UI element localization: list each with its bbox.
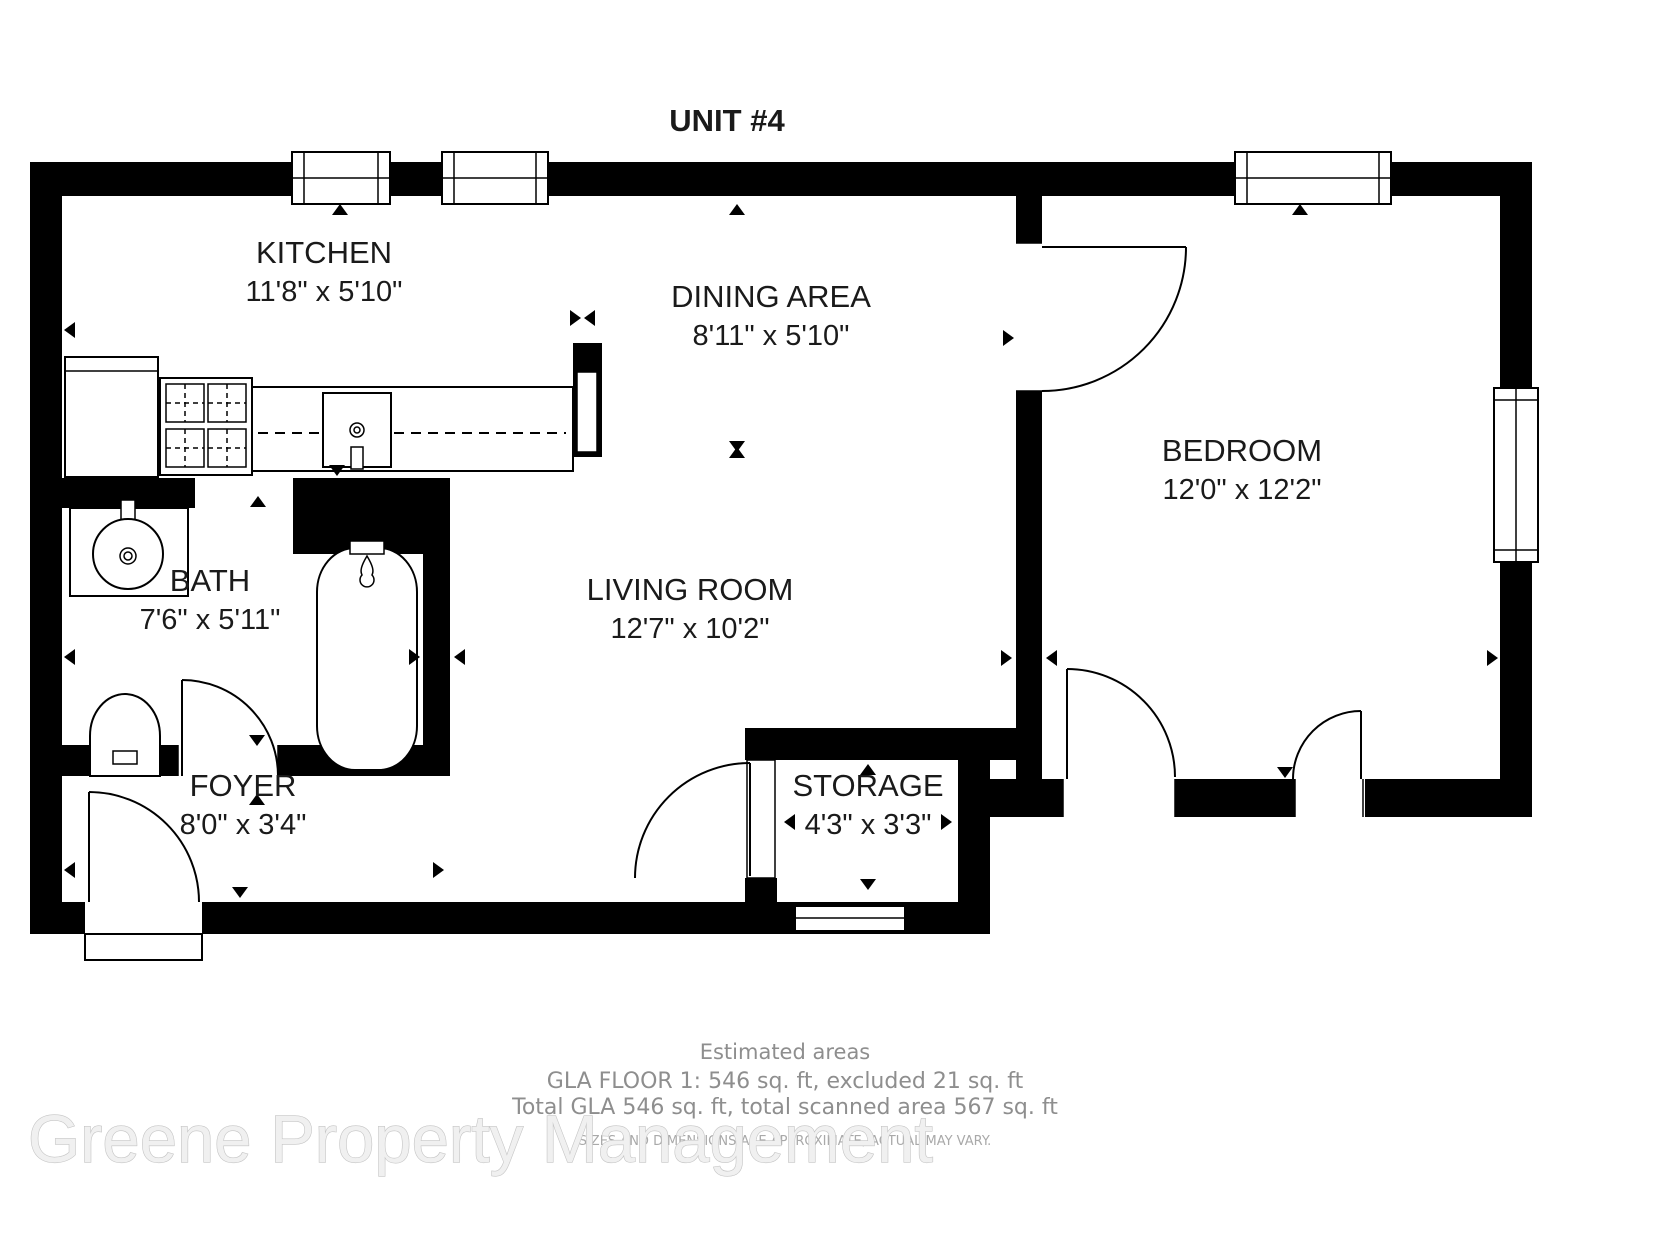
window-kitchen-2 [442,152,548,204]
footer-gla-line: GLA FLOOR 1: 546 sq. ft, excluded 21 sq.… [547,1069,1024,1094]
wall-left [30,196,62,934]
wall-bath-right [423,478,450,776]
bathtub-icon [317,541,417,770]
toilet-icon [90,694,160,776]
room-label-dining: DINING AREA [671,279,871,314]
room-label-foyer: FOYER [190,768,297,803]
stove-icon [160,378,252,475]
wall-storage-top [745,728,1040,760]
room-dims-dining: 8'11" x 5'10" [693,320,850,352]
room-label-kitchen: KITCHEN [256,235,392,270]
room-dims-kitchen: 11'8" x 5'10" [246,276,403,308]
window-bedroom-top [1235,152,1391,204]
room-dims-bath: 7'6" x 5'11" [140,604,281,636]
window-bedroom-right [1494,388,1538,562]
room-dims-storage: 4'3" x 3'3" [805,809,932,841]
peninsula-stub-slot [577,372,597,452]
room-label-storage: STORAGE [792,768,943,803]
footer-heading: Estimated areas [700,1040,871,1064]
floor-plan-page: UNIT #4 [0,0,1680,1260]
kitchen-counter [252,387,573,471]
floor-plan-canvas: UNIT #4 [0,0,1680,1260]
refrigerator-icon [65,357,158,477]
room-label-living: LIVING ROOM [587,572,794,607]
room-dims-foyer: 8'0" x 3'4" [180,809,307,841]
kitchen-sink-icon [323,393,391,469]
window-storage-bottom [795,906,905,931]
wall-storage-right [958,728,990,934]
page-title: UNIT #4 [669,103,785,138]
footer-total-line: Total GLA 546 sq. ft, total scanned area… [511,1095,1058,1120]
room-dims-living: 12'7" x 10'2" [610,613,769,645]
room-label-bath: BATH [170,563,250,598]
window-kitchen-1 [292,152,390,204]
bath-wall-opening [195,478,293,554]
wall-storage-left [745,878,777,912]
room-label-bedroom: BEDROOM [1162,433,1322,468]
room-dims-bedroom: 12'0" x 12'2" [1162,474,1321,506]
